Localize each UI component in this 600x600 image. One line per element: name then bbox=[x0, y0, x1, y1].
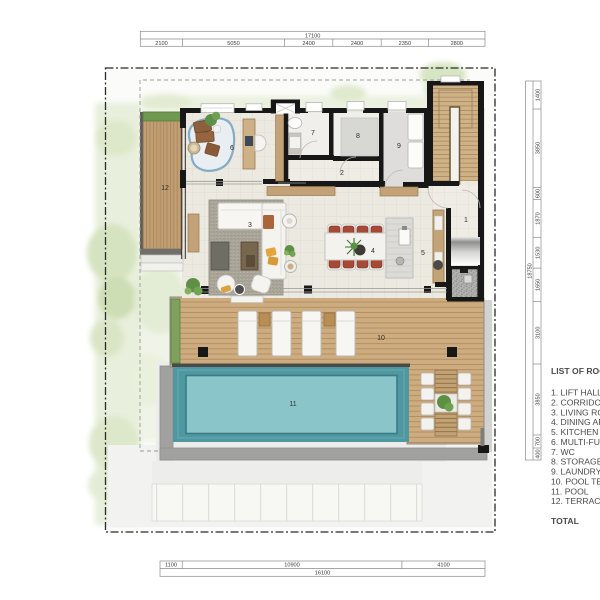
svg-text:1100: 1100 bbox=[165, 563, 177, 569]
svg-text:3850: 3850 bbox=[535, 142, 541, 154]
svg-text:11. POOL: 11. POOL bbox=[551, 486, 589, 496]
svg-text:9. LAUNDRY: 9. LAUNDRY bbox=[551, 467, 600, 477]
svg-text:1400: 1400 bbox=[535, 89, 541, 101]
svg-text:10900: 10900 bbox=[284, 563, 300, 569]
svg-text:1870: 1870 bbox=[535, 212, 541, 224]
svg-text:3. LIVING ROOM: 3. LIVING ROOM bbox=[551, 407, 600, 417]
svg-text:7: 7 bbox=[311, 130, 315, 137]
svg-text:7. WC: 7. WC bbox=[551, 447, 575, 457]
svg-text:10: 10 bbox=[377, 335, 385, 342]
svg-text:400: 400 bbox=[535, 449, 541, 458]
svg-text:6: 6 bbox=[230, 145, 234, 152]
svg-text:3: 3 bbox=[248, 222, 252, 229]
svg-text:2800: 2800 bbox=[451, 41, 463, 47]
svg-text:8. STORAGE: 8. STORAGE bbox=[551, 457, 600, 467]
svg-text:8: 8 bbox=[356, 133, 360, 140]
svg-text:16100: 16100 bbox=[315, 571, 331, 577]
svg-text:10. POOL TERRACE: 10. POOL TERRACE bbox=[551, 476, 600, 486]
svg-text:17100: 17100 bbox=[305, 34, 321, 40]
svg-text:4. DINING AREA: 4. DINING AREA bbox=[551, 417, 600, 427]
svg-text:2100: 2100 bbox=[155, 41, 167, 47]
svg-text:5: 5 bbox=[421, 250, 425, 257]
svg-text:6. MULTI-FUNCTION: 6. MULTI-FUNCTION bbox=[551, 437, 600, 447]
svg-text:5. KITCHEN AREA: 5. KITCHEN AREA bbox=[551, 427, 600, 437]
svg-text:2400: 2400 bbox=[302, 41, 314, 47]
svg-text:LIST OF ROOMS: LIST OF ROOMS bbox=[551, 366, 600, 376]
svg-text:1530: 1530 bbox=[535, 246, 541, 258]
svg-text:4100: 4100 bbox=[437, 563, 449, 569]
svg-text:5050: 5050 bbox=[227, 41, 239, 47]
svg-text:2: 2 bbox=[340, 170, 344, 177]
svg-text:12. TERRACE: 12. TERRACE bbox=[551, 496, 600, 506]
svg-text:600: 600 bbox=[535, 189, 541, 198]
svg-text:1. LIFT HALL: 1. LIFT HALL bbox=[551, 388, 600, 398]
svg-text:3100: 3100 bbox=[535, 326, 541, 338]
svg-text:4: 4 bbox=[371, 248, 375, 255]
svg-text:11: 11 bbox=[289, 401, 296, 408]
svg-text:9: 9 bbox=[397, 143, 401, 150]
svg-text:3850: 3850 bbox=[535, 393, 541, 405]
svg-text:18750: 18750 bbox=[528, 263, 534, 279]
svg-text:2400: 2400 bbox=[351, 41, 363, 47]
svg-text:1: 1 bbox=[464, 217, 468, 224]
svg-text:TOTAL: TOTAL bbox=[551, 516, 579, 526]
svg-text:700: 700 bbox=[535, 437, 541, 446]
svg-text:1650: 1650 bbox=[535, 279, 541, 291]
svg-text:12: 12 bbox=[161, 185, 169, 192]
svg-text:2350: 2350 bbox=[399, 41, 411, 47]
svg-text:2. CORRIDOR: 2. CORRIDOR bbox=[551, 397, 600, 407]
